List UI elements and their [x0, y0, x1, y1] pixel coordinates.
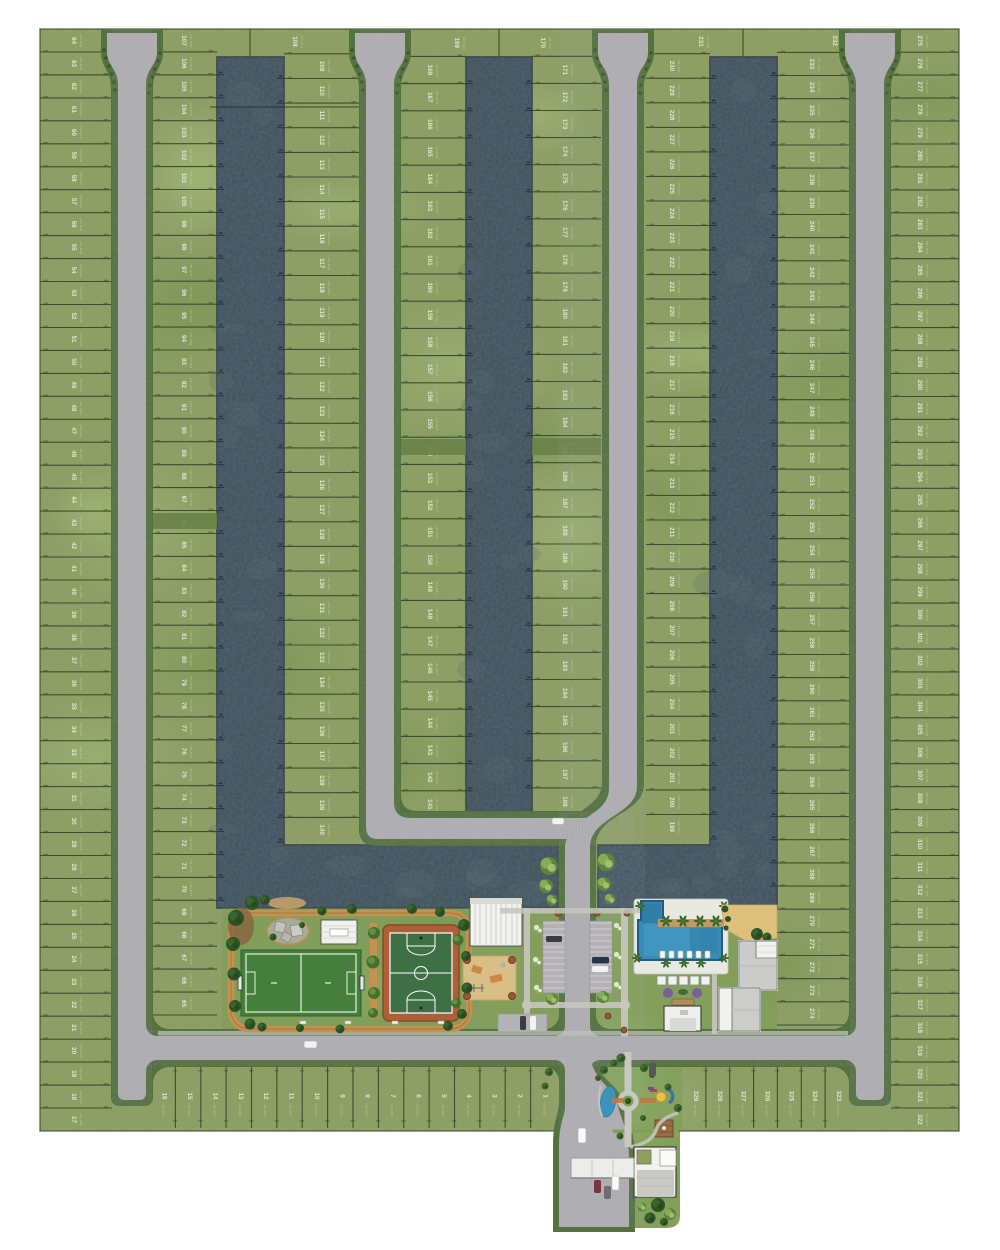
svg-text:305: 305	[916, 724, 923, 735]
svg-text:88: 88	[180, 473, 187, 481]
svg-text:113: 113	[318, 160, 325, 171]
svg-text:4,50 x 30,00: 4,50 x 30,00	[327, 823, 330, 837]
svg-text:146: 146	[426, 663, 433, 674]
svg-text:4,50 x 30,00: 4,50 x 30,00	[79, 218, 82, 232]
svg-text:121: 121	[318, 356, 325, 367]
svg-text:4,50 x 30,00: 4,50 x 30,00	[817, 729, 820, 743]
svg-text:4,50 x 30,00: 4,50 x 30,00	[327, 133, 330, 147]
svg-text:276: 276	[916, 58, 923, 69]
svg-text:26: 26	[70, 909, 77, 917]
svg-text:4,50 x 30,00: 4,50 x 30,00	[435, 91, 438, 105]
svg-text:116: 116	[318, 233, 325, 244]
svg-text:19: 19	[70, 1070, 77, 1078]
svg-text:224: 224	[668, 208, 675, 219]
svg-text:287: 287	[916, 311, 923, 322]
svg-text:168: 168	[426, 65, 433, 76]
svg-text:296: 296	[916, 517, 923, 528]
svg-text:61: 61	[70, 106, 77, 114]
svg-text:327: 327	[740, 1091, 747, 1102]
svg-text:4,50 x 30,00: 4,50 x 30,00	[79, 1090, 82, 1104]
svg-text:4,50 x 30,00: 4,50 x 30,00	[788, 1103, 791, 1117]
svg-text:4,50 x 30,00: 4,50 x 30,00	[817, 312, 820, 326]
svg-text:153: 153	[426, 473, 433, 484]
svg-text:4,50 x 30,00: 4,50 x 30,00	[817, 706, 820, 720]
svg-text:4,50 x 30,00: 4,50 x 30,00	[677, 59, 680, 73]
svg-text:4,50 x 30,00: 4,50 x 30,00	[925, 792, 928, 806]
svg-text:4,50 x 30,00: 4,50 x 30,00	[817, 451, 820, 465]
svg-text:4,50 x 30,00: 4,50 x 30,00	[817, 984, 820, 998]
svg-text:4,50 x 30,00: 4,50 x 30,00	[189, 676, 192, 690]
svg-text:45: 45	[70, 473, 77, 481]
svg-text:4,50 x 30,00: 4,50 x 30,00	[79, 470, 82, 484]
svg-text:15: 15	[186, 1092, 193, 1100]
svg-text:4,50 x 30,00: 4,50 x 30,00	[925, 1090, 928, 1104]
svg-text:4,50 x 30,00: 4,50 x 30,00	[435, 580, 438, 594]
svg-text:4,50 x 30,00: 4,50 x 30,00	[327, 651, 330, 665]
svg-text:270: 270	[808, 916, 815, 927]
svg-text:275: 275	[916, 35, 923, 46]
svg-text:251: 251	[808, 476, 815, 487]
svg-text:64: 64	[70, 37, 77, 45]
svg-text:4,50 x 30,00: 4,50 x 30,00	[435, 390, 438, 404]
svg-text:4,50 x 30,00: 4,50 x 30,00	[435, 199, 438, 213]
svg-text:106: 106	[180, 58, 187, 69]
svg-text:32: 32	[70, 772, 77, 780]
svg-text:4,50 x 30,00: 4,50 x 30,00	[466, 1103, 469, 1117]
svg-text:319: 319	[916, 1045, 923, 1056]
svg-text:4,50 x 30,00: 4,50 x 30,00	[327, 700, 330, 714]
svg-text:4,50 x 30,00: 4,50 x 30,00	[327, 725, 330, 739]
svg-text:279: 279	[916, 127, 923, 138]
svg-text:4,50 x 30,00: 4,50 x 30,00	[79, 195, 82, 209]
svg-text:1: 1	[541, 1094, 548, 1098]
svg-text:162: 162	[426, 228, 433, 239]
svg-text:4,50 x 30,00: 4,50 x 30,00	[435, 118, 438, 132]
svg-text:4,50 x 30,00: 4,50 x 30,00	[327, 798, 330, 812]
svg-text:35: 35	[70, 703, 77, 711]
svg-text:4,50 x 30,00: 4,50 x 30,00	[677, 428, 680, 442]
svg-text:301: 301	[916, 632, 923, 643]
svg-text:4,50 x 30,00: 4,50 x 30,00	[435, 172, 438, 186]
svg-text:4,50 x 30,00: 4,50 x 30,00	[817, 937, 820, 951]
svg-text:4,50 x 30,00: 4,50 x 30,00	[677, 109, 680, 123]
svg-text:202: 202	[668, 748, 675, 759]
svg-text:4,50 x 30,00: 4,50 x 30,00	[189, 722, 192, 736]
svg-text:4,50 x 30,00: 4,50 x 30,00	[79, 860, 82, 874]
svg-text:129: 129	[318, 553, 325, 564]
svg-text:239: 239	[808, 198, 815, 209]
svg-text:155: 155	[426, 418, 433, 429]
svg-text:126: 126	[318, 480, 325, 491]
svg-text:4,50 x 30,00: 4,50 x 30,00	[79, 1021, 82, 1035]
svg-text:4,50 x 30,00: 4,50 x 30,00	[79, 700, 82, 714]
svg-text:290: 290	[916, 380, 923, 391]
svg-text:101: 101	[180, 173, 187, 184]
svg-text:325: 325	[787, 1091, 794, 1102]
svg-text:4,50 x 30,00: 4,50 x 30,00	[79, 80, 82, 94]
svg-text:159: 159	[426, 310, 433, 321]
svg-text:95: 95	[180, 312, 187, 320]
svg-text:4,50 x 30,00: 4,50 x 30,00	[189, 974, 192, 988]
svg-text:4,50 x 30,00: 4,50 x 30,00	[817, 845, 820, 859]
svg-text:273: 273	[808, 985, 815, 996]
svg-text:4,50 x 30,00: 4,50 x 30,00	[925, 562, 928, 576]
svg-text:149: 149	[426, 582, 433, 593]
svg-text:4,50 x 30,00: 4,50 x 30,00	[189, 217, 192, 231]
svg-text:255: 255	[808, 568, 815, 579]
svg-text:123: 123	[318, 406, 325, 417]
svg-text:135: 135	[318, 701, 325, 712]
svg-text:4,50 x 30,00: 4,50 x 30,00	[435, 689, 438, 703]
svg-text:4,50 x 30,00: 4,50 x 30,00	[925, 172, 928, 186]
svg-text:4,50 x 30,00: 4,50 x 30,00	[435, 363, 438, 377]
svg-text:4,50 x 30,00: 4,50 x 30,00	[677, 550, 680, 564]
svg-text:4,50 x 30,00: 4,50 x 30,00	[189, 171, 192, 185]
svg-text:157: 157	[426, 364, 433, 375]
svg-text:16: 16	[161, 1092, 168, 1100]
svg-text:207: 207	[668, 625, 675, 636]
svg-text:4,50 x 30,00: 4,50 x 30,00	[300, 35, 303, 49]
svg-text:29: 29	[70, 841, 77, 849]
svg-text:119: 119	[318, 307, 325, 318]
svg-text:56: 56	[70, 221, 77, 229]
svg-text:4,50 x 30,00: 4,50 x 30,00	[327, 355, 330, 369]
svg-text:4,50 x 30,00: 4,50 x 30,00	[339, 1103, 342, 1117]
svg-text:4,50 x 30,00: 4,50 x 30,00	[79, 654, 82, 668]
svg-text:4,50 x 30,00: 4,50 x 30,00	[925, 631, 928, 645]
svg-text:4,50 x 30,00: 4,50 x 30,00	[189, 836, 192, 850]
svg-text:234: 234	[808, 82, 815, 93]
svg-text:324: 324	[811, 1091, 818, 1102]
svg-text:4,50 x 30,00: 4,50 x 30,00	[189, 882, 192, 896]
svg-text:40: 40	[70, 588, 77, 596]
svg-text:110: 110	[318, 86, 325, 97]
svg-text:248: 248	[808, 406, 815, 417]
svg-text:4,50 x 30,00: 4,50 x 30,00	[925, 906, 928, 920]
svg-text:4,50 x 30,00: 4,50 x 30,00	[189, 286, 192, 300]
svg-text:43: 43	[70, 519, 77, 527]
svg-text:4,50 x 30,00: 4,50 x 30,00	[677, 501, 680, 515]
svg-text:170: 170	[539, 37, 546, 48]
svg-text:4,50 x 30,00: 4,50 x 30,00	[925, 815, 928, 829]
svg-text:4,50 x 30,00: 4,50 x 30,00	[79, 883, 82, 897]
svg-text:114: 114	[318, 184, 325, 195]
svg-text:263: 263	[808, 753, 815, 764]
svg-text:4,50 x 30,00: 4,50 x 30,00	[542, 1103, 545, 1117]
svg-text:87: 87	[180, 496, 187, 504]
svg-text:4,50 x 30,00: 4,50 x 30,00	[327, 281, 330, 295]
svg-text:4,50 x 30,00: 4,50 x 30,00	[817, 868, 820, 882]
svg-text:4,50 x 30,00: 4,50 x 30,00	[79, 1113, 82, 1127]
svg-text:4,50 x 30,00: 4,50 x 30,00	[79, 539, 82, 553]
svg-text:4,50 x 30,00: 4,50 x 30,00	[492, 1103, 495, 1117]
svg-text:4,50 x 30,00: 4,50 x 30,00	[925, 723, 928, 737]
svg-text:4,50 x 30,00: 4,50 x 30,00	[925, 241, 928, 255]
svg-text:137: 137	[318, 751, 325, 762]
svg-text:74: 74	[180, 794, 187, 802]
svg-text:199: 199	[668, 821, 675, 832]
svg-text:4,50 x 30,00: 4,50 x 30,00	[79, 746, 82, 760]
svg-text:4,50 x 30,00: 4,50 x 30,00	[677, 133, 680, 147]
svg-text:52: 52	[70, 312, 77, 320]
svg-text:4,50 x 30,00: 4,50 x 30,00	[925, 608, 928, 622]
svg-text:4,50 x 30,00: 4,50 x 30,00	[189, 630, 192, 644]
svg-text:130: 130	[318, 578, 325, 589]
svg-text:4,50 x 30,00: 4,50 x 30,00	[79, 332, 82, 346]
svg-text:4,50 x 30,00: 4,50 x 30,00	[548, 36, 551, 50]
svg-text:4,50 x 30,00: 4,50 x 30,00	[79, 401, 82, 415]
svg-text:4,50 x 30,00: 4,50 x 30,00	[925, 1044, 928, 1058]
svg-text:4,50 x 30,00: 4,50 x 30,00	[925, 654, 928, 668]
svg-text:72: 72	[180, 840, 187, 848]
svg-text:92: 92	[180, 381, 187, 389]
svg-text:103: 103	[180, 127, 187, 138]
svg-text:23: 23	[70, 978, 77, 986]
svg-text:4,50 x 30,00: 4,50 x 30,00	[925, 860, 928, 874]
svg-text:317: 317	[916, 999, 923, 1010]
svg-text:4,50 x 30,00: 4,50 x 30,00	[189, 584, 192, 598]
svg-text:214: 214	[668, 453, 675, 464]
svg-text:4,50 x 30,00: 4,50 x 30,00	[925, 264, 928, 278]
svg-text:4,50 x 30,00: 4,50 x 30,00	[677, 207, 680, 221]
svg-text:283: 283	[916, 219, 923, 230]
svg-text:4,50 x 30,00: 4,50 x 30,00	[677, 280, 680, 294]
svg-text:4,50 x 30,00: 4,50 x 30,00	[189, 126, 192, 140]
svg-text:4,50 x 30,00: 4,50 x 30,00	[189, 401, 192, 415]
svg-text:4,50 x 30,00: 4,50 x 30,00	[189, 355, 192, 369]
svg-text:4,50 x 30,00: 4,50 x 30,00	[327, 109, 330, 123]
svg-text:4,50 x 30,00: 4,50 x 30,00	[327, 257, 330, 271]
svg-text:4,50 x 30,00: 4,50 x 30,00	[677, 575, 680, 589]
svg-text:4,50 x 30,00: 4,50 x 30,00	[435, 526, 438, 540]
svg-text:4,50 x 30,00: 4,50 x 30,00	[79, 998, 82, 1012]
svg-text:4,50 x 30,00: 4,50 x 30,00	[79, 1067, 82, 1081]
svg-text:4,50 x 30,00: 4,50 x 30,00	[817, 127, 820, 141]
svg-text:67: 67	[180, 954, 187, 962]
svg-text:4,50 x 30,00: 4,50 x 30,00	[677, 599, 680, 613]
svg-text:142: 142	[426, 772, 433, 783]
svg-text:166: 166	[426, 119, 433, 130]
svg-text:4,50 x 30,00: 4,50 x 30,00	[693, 1103, 696, 1117]
svg-text:41: 41	[70, 565, 77, 573]
svg-text:4,50 x 30,00: 4,50 x 30,00	[435, 662, 438, 676]
svg-text:303: 303	[916, 678, 923, 689]
svg-text:237: 237	[808, 151, 815, 162]
svg-text:4,50 x 30,00: 4,50 x 30,00	[189, 859, 192, 873]
svg-text:148: 148	[426, 609, 433, 620]
svg-text:210: 210	[668, 552, 675, 563]
svg-text:4,50 x 30,00: 4,50 x 30,00	[817, 1007, 820, 1021]
svg-text:4,50 x 30,00: 4,50 x 30,00	[817, 683, 820, 697]
svg-text:124: 124	[318, 430, 325, 441]
svg-text:54: 54	[70, 267, 77, 275]
svg-text:213: 213	[668, 478, 675, 489]
svg-text:55: 55	[70, 244, 77, 252]
svg-text:105: 105	[180, 81, 187, 92]
svg-text:4,50 x 30,00: 4,50 x 30,00	[189, 607, 192, 621]
svg-text:4,50 x 30,00: 4,50 x 30,00	[79, 975, 82, 989]
svg-text:4,50 x 30,00: 4,50 x 30,00	[189, 103, 192, 117]
svg-text:322: 322	[916, 1114, 923, 1125]
svg-text:76: 76	[180, 748, 187, 756]
svg-text:145: 145	[426, 690, 433, 701]
svg-text:4,50 x 30,00: 4,50 x 30,00	[925, 837, 928, 851]
svg-text:83: 83	[180, 587, 187, 595]
svg-text:4,50 x 30,00: 4,50 x 30,00	[79, 952, 82, 966]
svg-text:122: 122	[318, 381, 325, 392]
svg-text:4,50 x 30,00: 4,50 x 30,00	[677, 305, 680, 319]
svg-text:31: 31	[70, 795, 77, 803]
svg-text:144: 144	[426, 718, 433, 729]
svg-text:4,50 x 30,00: 4,50 x 30,00	[677, 648, 680, 662]
svg-text:286: 286	[916, 288, 923, 299]
svg-text:228: 228	[668, 110, 675, 121]
svg-text:4,50 x 30,00: 4,50 x 30,00	[79, 1044, 82, 1058]
svg-text:111: 111	[318, 110, 325, 120]
svg-text:242: 242	[808, 267, 815, 278]
svg-text:298: 298	[916, 563, 923, 574]
svg-text:59: 59	[70, 152, 77, 160]
svg-text:320: 320	[916, 1068, 923, 1079]
svg-text:262: 262	[808, 730, 815, 741]
svg-text:280: 280	[916, 150, 923, 161]
svg-text:4,50 x 30,00: 4,50 x 30,00	[817, 335, 820, 349]
svg-text:4,50 x 30,00: 4,50 x 30,00	[79, 103, 82, 117]
svg-text:4,50 x 30,00: 4,50 x 30,00	[435, 798, 438, 812]
svg-text:73: 73	[180, 817, 187, 825]
svg-text:226: 226	[668, 159, 675, 170]
svg-text:48: 48	[70, 404, 77, 412]
svg-text:245: 245	[808, 337, 815, 348]
svg-text:4,50 x 30,00: 4,50 x 30,00	[327, 232, 330, 246]
svg-text:4,50 x 30,00: 4,50 x 30,00	[327, 552, 330, 566]
svg-text:4,50 x 30,00: 4,50 x 30,00	[79, 906, 82, 920]
svg-text:4,50 x 30,00: 4,50 x 30,00	[79, 929, 82, 943]
svg-text:244: 244	[808, 313, 815, 324]
svg-text:4,50 x 30,00: 4,50 x 30,00	[327, 183, 330, 197]
svg-text:4,50 x 30,00: 4,50 x 30,00	[817, 544, 820, 558]
svg-text:326: 326	[764, 1091, 771, 1102]
svg-text:4,50 x 30,00: 4,50 x 30,00	[817, 358, 820, 372]
svg-text:98: 98	[180, 243, 187, 251]
svg-text:131: 131	[318, 603, 325, 614]
svg-text:271: 271	[808, 939, 815, 950]
svg-text:4,50 x 30,00: 4,50 x 30,00	[925, 34, 928, 48]
svg-text:292: 292	[916, 426, 923, 437]
svg-text:4,50 x 30,00: 4,50 x 30,00	[390, 1103, 393, 1117]
svg-text:4,50 x 30,00: 4,50 x 30,00	[327, 626, 330, 640]
svg-text:258: 258	[808, 638, 815, 649]
svg-text:89: 89	[180, 450, 187, 458]
svg-text:4,50 x 30,00: 4,50 x 30,00	[817, 798, 820, 812]
svg-text:4,50 x 30,00: 4,50 x 30,00	[925, 1113, 928, 1127]
svg-text:156: 156	[426, 391, 433, 402]
svg-text:306: 306	[916, 747, 923, 758]
svg-text:289: 289	[916, 357, 923, 368]
svg-text:4,50 x 30,00: 4,50 x 30,00	[435, 254, 438, 268]
svg-text:4,50 x 30,00: 4,50 x 30,00	[79, 172, 82, 186]
svg-text:107: 107	[180, 35, 187, 46]
svg-text:50: 50	[70, 358, 77, 366]
svg-text:284: 284	[916, 242, 923, 253]
svg-text:4,50 x 30,00: 4,50 x 30,00	[79, 631, 82, 645]
svg-text:215: 215	[668, 429, 675, 440]
svg-text:22: 22	[70, 1001, 77, 1009]
svg-text:4,50 x 30,00: 4,50 x 30,00	[925, 998, 928, 1012]
svg-text:4,50 x 30,00: 4,50 x 30,00	[706, 35, 709, 49]
svg-text:51: 51	[70, 335, 77, 343]
svg-text:4,50 x 30,00: 4,50 x 30,00	[817, 497, 820, 511]
svg-text:302: 302	[916, 655, 923, 666]
svg-text:4,50 x 30,00: 4,50 x 30,00	[327, 454, 330, 468]
svg-text:39: 39	[70, 611, 77, 619]
svg-text:300: 300	[916, 609, 923, 620]
svg-text:4,50 x 30,00: 4,50 x 30,00	[435, 145, 438, 159]
svg-text:57: 57	[70, 198, 77, 206]
svg-text:4,50 x 30,00: 4,50 x 30,00	[435, 227, 438, 241]
svg-text:4,50 x 30,00: 4,50 x 30,00	[189, 928, 192, 942]
svg-text:4,50 x 30,00: 4,50 x 30,00	[677, 673, 680, 687]
svg-text:206: 206	[668, 650, 675, 661]
svg-text:4,50 x 30,00: 4,50 x 30,00	[925, 378, 928, 392]
svg-text:4,50 x 30,00: 4,50 x 30,00	[189, 470, 192, 484]
svg-text:4,50 x 30,00: 4,50 x 30,00	[817, 775, 820, 789]
svg-text:4,50 x 30,00: 4,50 x 30,00	[327, 404, 330, 418]
svg-text:161: 161	[426, 255, 433, 266]
svg-text:316: 316	[916, 977, 923, 988]
svg-text:4,50 x 30,00: 4,50 x 30,00	[677, 624, 680, 638]
svg-text:33: 33	[70, 749, 77, 757]
svg-text:4,50 x 30,00: 4,50 x 30,00	[189, 80, 192, 94]
svg-text:231: 231	[697, 36, 704, 47]
svg-text:68: 68	[180, 931, 187, 939]
svg-text:151: 151	[426, 527, 433, 538]
svg-text:222: 222	[668, 257, 675, 268]
svg-text:4,50 x 30,00: 4,50 x 30,00	[925, 746, 928, 760]
svg-text:28: 28	[70, 863, 77, 871]
svg-text:4,50 x 30,00: 4,50 x 30,00	[189, 951, 192, 965]
svg-text:112: 112	[318, 135, 325, 146]
svg-text:4,50 x 30,00: 4,50 x 30,00	[327, 380, 330, 394]
svg-text:4,50 x 30,00: 4,50 x 30,00	[925, 700, 928, 714]
svg-text:235: 235	[808, 105, 815, 116]
svg-text:312: 312	[916, 885, 923, 896]
svg-text:4,50 x 30,00: 4,50 x 30,00	[677, 403, 680, 417]
svg-text:152: 152	[426, 500, 433, 511]
svg-text:136: 136	[318, 726, 325, 737]
svg-text:256: 256	[808, 591, 815, 602]
svg-text:109: 109	[318, 61, 325, 72]
svg-text:4,50 x 30,00: 4,50 x 30,00	[717, 1103, 720, 1117]
svg-text:71: 71	[180, 862, 187, 870]
svg-text:297: 297	[916, 540, 923, 551]
svg-text:4,50 x 30,00: 4,50 x 30,00	[812, 1103, 815, 1117]
svg-text:4,50 x 30,00: 4,50 x 30,00	[79, 493, 82, 507]
svg-text:4,50 x 30,00: 4,50 x 30,00	[817, 590, 820, 604]
svg-text:282: 282	[916, 196, 923, 207]
svg-text:4,50 x 30,00: 4,50 x 30,00	[435, 335, 438, 349]
svg-text:4,50 x 30,00: 4,50 x 30,00	[925, 447, 928, 461]
svg-text:4,50 x 30,00: 4,50 x 30,00	[677, 158, 680, 172]
svg-text:4,50 x 30,00: 4,50 x 30,00	[327, 330, 330, 344]
svg-text:79: 79	[180, 679, 187, 687]
svg-text:252: 252	[808, 499, 815, 510]
svg-text:80: 80	[180, 656, 187, 664]
svg-text:4,50 x 30,00: 4,50 x 30,00	[817, 636, 820, 650]
svg-text:117: 117	[318, 258, 325, 269]
svg-text:200: 200	[668, 797, 675, 808]
svg-text:141: 141	[426, 799, 433, 810]
